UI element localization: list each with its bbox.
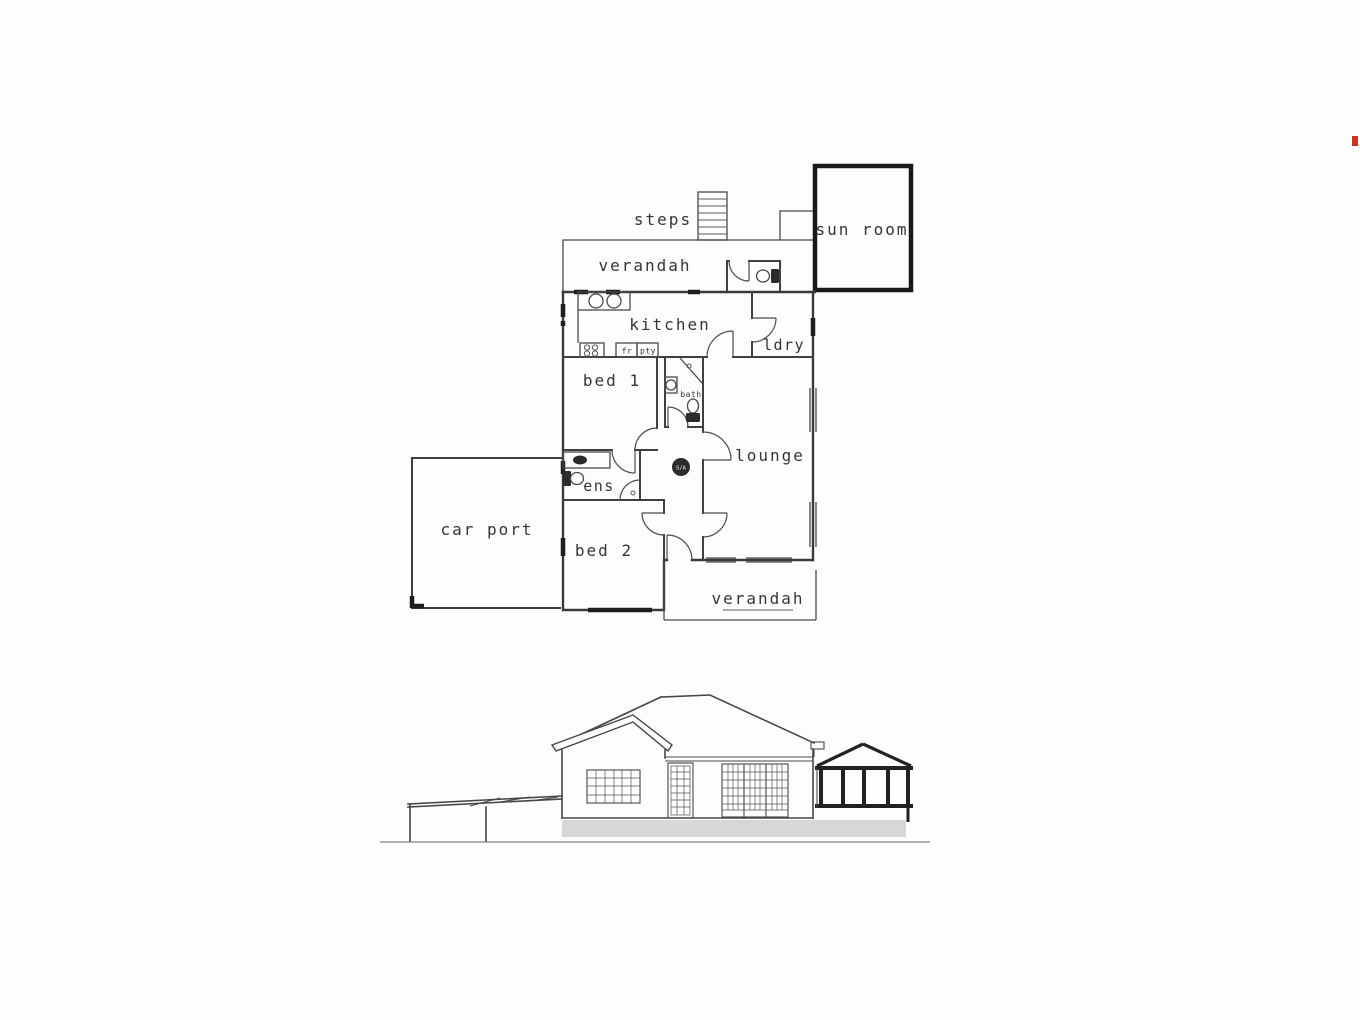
- elevation: [380, 695, 930, 842]
- floor-plan: verandah steps sun room: [412, 166, 911, 620]
- bed1-label: bed 1: [583, 371, 641, 390]
- room-wc: [727, 261, 780, 292]
- plinth-band: [562, 820, 906, 837]
- room-bath: bath: [665, 357, 703, 427]
- room-ens: ens: [563, 450, 664, 500]
- ens-label: ens: [583, 477, 615, 495]
- room-bed1: bed 1: [583, 357, 657, 450]
- lounge-label: lounge: [735, 446, 805, 465]
- steps: steps: [634, 192, 727, 240]
- toilet-icon: [688, 399, 699, 413]
- hall: S/A: [667, 458, 692, 560]
- elevation-carport: [408, 796, 562, 841]
- scanned-plan-page: verandah steps sun room: [0, 0, 1360, 1020]
- elevation-gable: [552, 715, 672, 818]
- fridge-label: fr: [622, 347, 633, 356]
- basin-icon: [573, 456, 587, 465]
- car-port-label: car port: [440, 520, 533, 539]
- shower-drain-icon: [631, 491, 635, 495]
- sink-bench: [578, 292, 630, 310]
- bed2-label: bed 2: [575, 541, 633, 560]
- room-sun-room: sun room: [815, 166, 911, 290]
- elevation-hip-roof: [554, 695, 824, 757]
- scan-artifact-dot: [1352, 136, 1358, 146]
- verandah-top-label: verandah: [598, 256, 691, 275]
- stove-icon: [580, 343, 604, 357]
- plan-drawing: verandah steps sun room: [0, 0, 1360, 1020]
- pantry-label: pty: [640, 347, 656, 356]
- door: [668, 763, 693, 818]
- room-lounge: lounge: [703, 357, 805, 560]
- sink-bowl-icon: [589, 294, 603, 308]
- sun-room-label: sun room: [815, 220, 908, 239]
- basin-icon: [666, 380, 676, 390]
- steps-label: steps: [634, 210, 692, 229]
- verandah-bottom-label: verandah: [711, 589, 804, 608]
- smoke-alarm-label: S/A: [676, 466, 687, 472]
- room-kitchen: fr pty kitchen: [563, 292, 752, 357]
- car-port: car port: [412, 458, 563, 608]
- room-bed2: bed 2: [575, 500, 664, 560]
- laundry-label: ldry: [763, 336, 805, 354]
- elevation-sun-room: [817, 744, 911, 822]
- elevation-main-wall: [562, 749, 813, 818]
- room-laundry: ldry: [752, 292, 813, 357]
- sink-bowl-icon: [607, 294, 621, 308]
- toilet-icon: [757, 270, 770, 282]
- verandah-bottom: verandah: [664, 562, 816, 620]
- kitchen-label: kitchen: [629, 315, 710, 334]
- bath-label: bath: [680, 390, 701, 399]
- toilet-icon: [571, 473, 584, 485]
